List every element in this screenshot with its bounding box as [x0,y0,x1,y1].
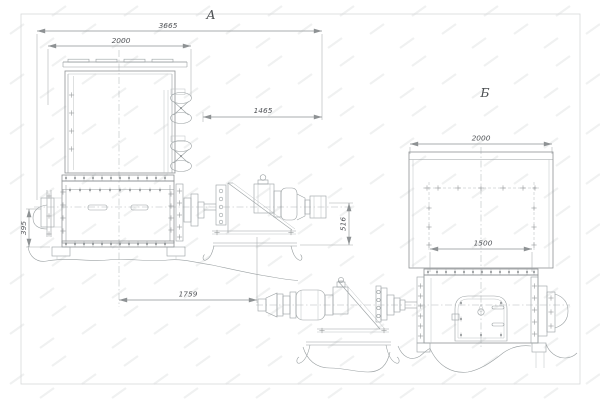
view-a-title: А [205,7,215,22]
dim-hopper-width-a-label: 2000 [112,36,131,45]
engineering-drawing: А 3665 2000 1465 [0,0,600,400]
watermark-texture [0,0,600,400]
dim-body-width-label: 1500 [474,239,493,248]
dim-drive-length-label: 1465 [254,106,273,115]
dim-frame-length-label: 1759 [179,290,198,299]
dim-drive-height-label: 516 [339,217,348,231]
view-b-title: Б [479,85,489,100]
dim-mount-height-label: 395 [19,221,28,235]
dim-hopper-width-b-label: 2000 [472,134,491,143]
drawing-sheet: А 3665 2000 1465 [0,0,600,400]
dim-overall-length-label: 3665 [159,21,178,30]
